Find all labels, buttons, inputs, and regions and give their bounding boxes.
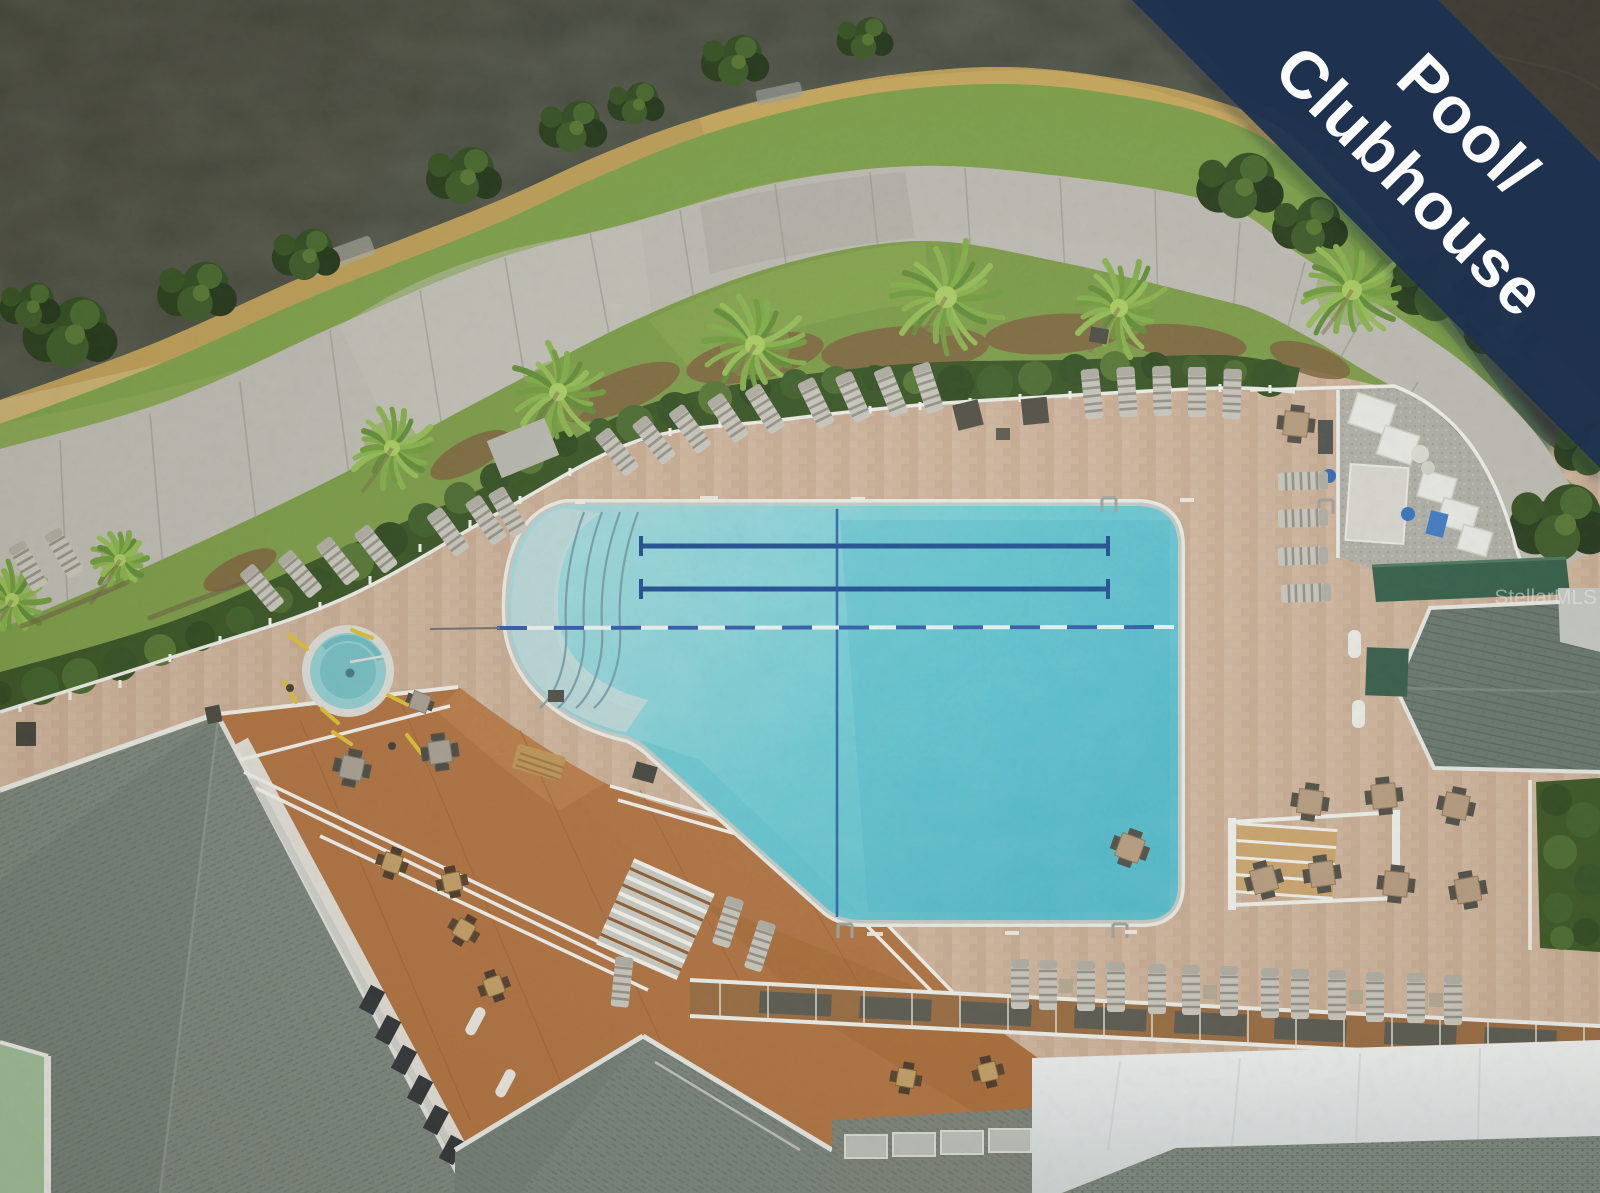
svg-text:StellarMLS: StellarMLS [1494, 586, 1597, 609]
